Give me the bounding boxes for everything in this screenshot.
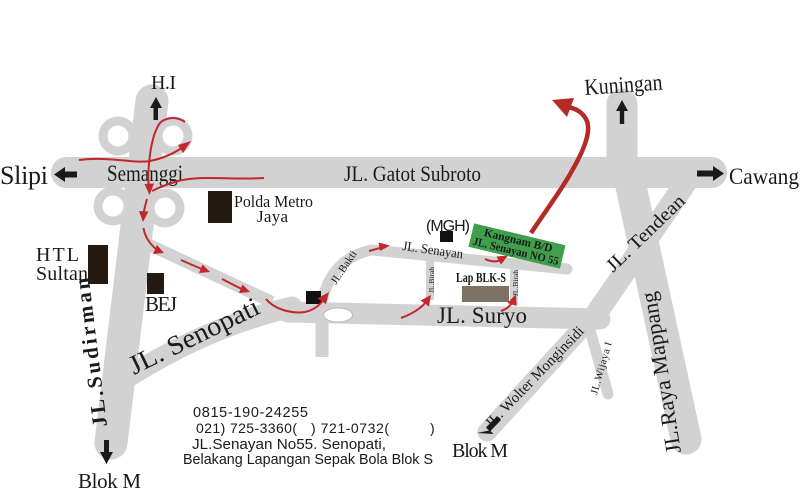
svg-text:JL. Suryo: JL. Suryo	[437, 303, 527, 328]
svg-text:): )	[430, 420, 435, 436]
svg-text:Blok M: Blok M	[452, 440, 508, 462]
svg-text:) 721-0732(: ) 721-0732(	[311, 420, 389, 436]
svg-text:JL.Birah: JL.Birah	[427, 267, 436, 293]
svg-text:Belakang Lapangan Sepak Bola B: Belakang Lapangan Sepak Bola Blok S	[183, 452, 433, 468]
svg-text:BEJ: BEJ	[145, 292, 177, 316]
svg-text:(MGH): (MGH)	[426, 218, 470, 235]
svg-text:JL.Birah: JL.Birah	[511, 270, 520, 296]
svg-text:JL.Senayan No55. Senopati,: JL.Senayan No55. Senopati,	[192, 436, 386, 453]
svg-text:JL. Gatot Subroto: JL. Gatot Subroto	[344, 161, 481, 186]
svg-text:Blok M: Blok M	[78, 469, 141, 490]
svg-text:Slipi: Slipi	[0, 161, 48, 190]
svg-text:H.I: H.I	[151, 72, 176, 94]
svg-text:0815-190-24255: 0815-190-24255	[193, 405, 308, 421]
svg-text:Cawang: Cawang	[729, 164, 799, 189]
svg-text:021) 725-3360(: 021) 725-3360(	[196, 420, 297, 436]
svg-text:Jaya: Jaya	[257, 207, 288, 226]
svg-text:Lap BLK-S: Lap BLK-S	[456, 271, 506, 286]
